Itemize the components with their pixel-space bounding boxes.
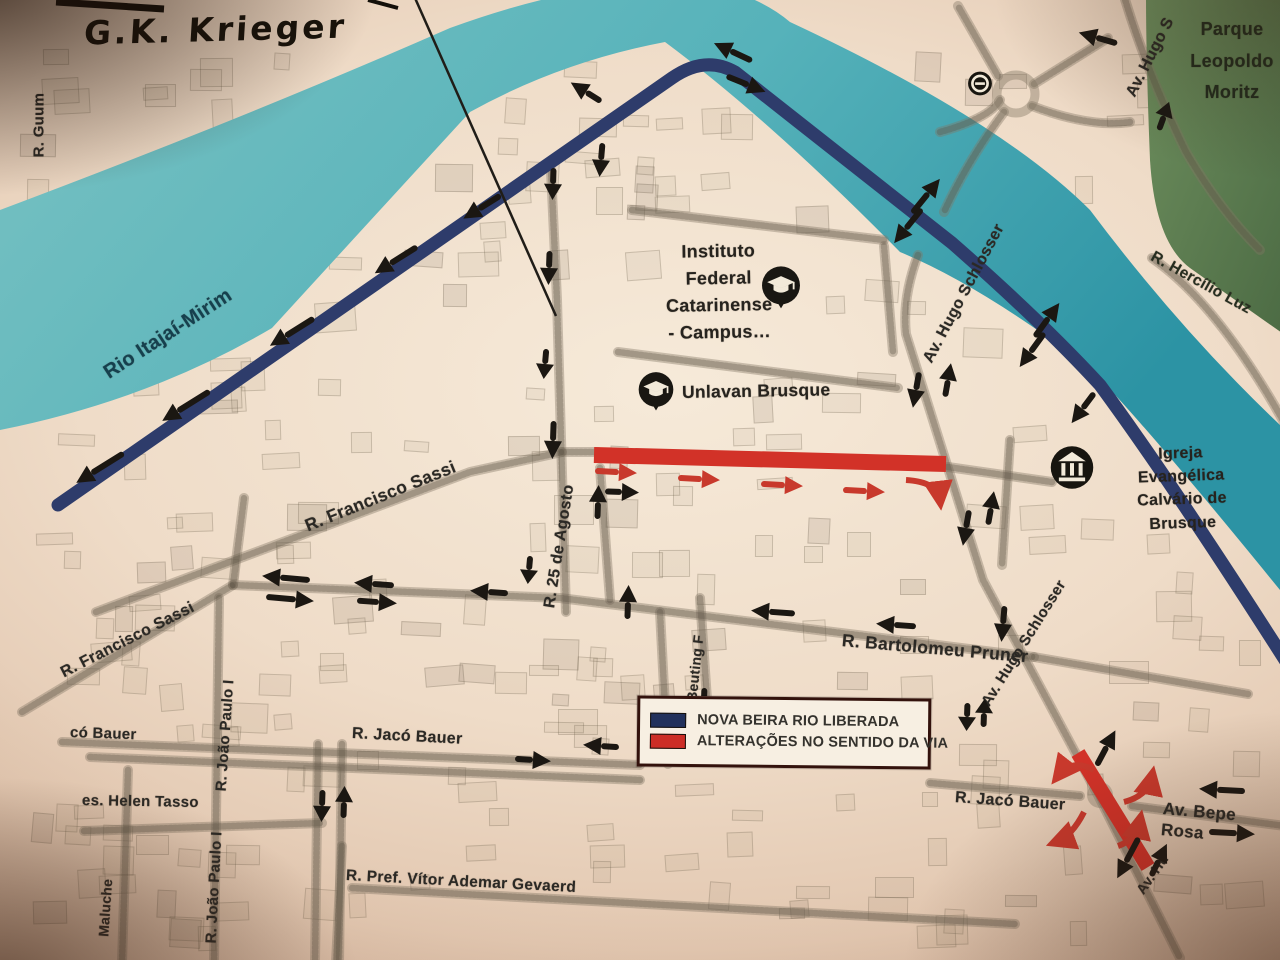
poi-unlavan-label: Unlavan Brusque: [682, 379, 831, 403]
street-road: [948, 467, 1052, 482]
changed-direction-road-main: [594, 455, 946, 464]
ink-mark: [56, 2, 164, 9]
roundabout: [997, 75, 1035, 113]
igreja-pin: [1047, 443, 1097, 498]
unlavan-pin: [635, 370, 677, 417]
red-turn-arrow: [1056, 812, 1084, 842]
legend-swatch-blue: [650, 712, 686, 727]
ink-mark: [368, 0, 398, 8]
street-road: [1034, 38, 1108, 84]
street-o-bauer: có Bauer: [70, 724, 137, 745]
street-helen-tasso: es. Helen Tasso: [82, 792, 199, 813]
street-r-guum: R. Guum: [31, 93, 50, 158]
park-name: Parque Leopoldo Moritz: [1190, 14, 1273, 109]
street-road: [315, 744, 318, 960]
red-turn-arrow: [1124, 776, 1152, 802]
red-turn-arrow: [906, 480, 940, 500]
legend: NOVA BEIRA RIO LIBERADA ALTERAÇÕES NO SE…: [637, 695, 932, 769]
handwritten-signature: G.K. Krieger: [83, 7, 348, 53]
poi-igreja-label: Igreja Evangélica Calvário de Brusque: [1130, 440, 1233, 536]
legend-item-changed-road: ALTERAÇÕES NO SENTIDO DA VIA: [650, 733, 918, 752]
street-road: [1002, 440, 1010, 565]
instituto-federal-pin: [758, 264, 804, 315]
church-icon: [1047, 443, 1097, 493]
poi-instituto-label: Instituto Federal Catarinense - Campus…: [665, 237, 773, 347]
river-itajai-mirim: [0, 0, 1280, 590]
map-photo: G.K. Krieger NOVA BEIRA RIO LIBERADA ALT…: [0, 0, 1280, 960]
legend-swatch-red: [650, 733, 686, 748]
street-road: [958, 6, 998, 76]
transit-icon: [967, 71, 993, 97]
legend-label: ALTERAÇÕES NO SENTIDO DA VIA: [697, 733, 948, 752]
legend-label: NOVA BEIRA RIO LIBERADA: [697, 712, 899, 730]
street-road: [632, 210, 884, 240]
street-road: [84, 823, 322, 831]
street-road: [352, 888, 1015, 924]
station-pin: [967, 71, 993, 102]
street-road: [1034, 657, 1248, 694]
graduation-cap-icon: [758, 264, 804, 310]
graduation-cap-icon: [635, 370, 677, 412]
legend-item-new-road: NOVA BEIRA RIO LIBERADA: [650, 712, 918, 731]
